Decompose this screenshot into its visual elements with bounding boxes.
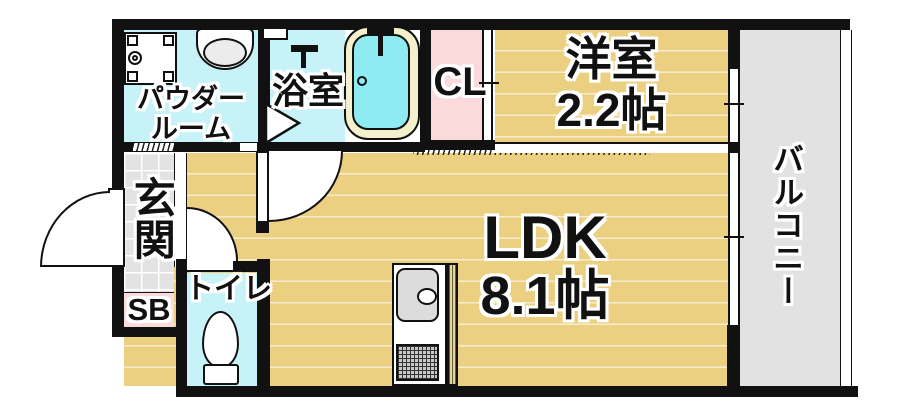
washing-machine-pan-icon xyxy=(124,32,177,85)
toilet-tank-icon xyxy=(203,364,239,385)
shower-stem xyxy=(301,52,306,68)
western-room-label: 洋室 2.2帖 xyxy=(495,34,728,135)
bathroom-label: 浴室 xyxy=(268,71,348,111)
wall-toilet-top xyxy=(233,261,257,272)
ldk-label: LDK 8.1帖 xyxy=(420,208,670,325)
bathtub-icon xyxy=(344,26,420,140)
toilet-label: トイレ xyxy=(185,274,259,306)
western-sliding-band xyxy=(495,142,728,153)
western-window xyxy=(728,69,740,142)
wall-closet-bottom xyxy=(425,140,495,150)
balcony-label: バルコニー xyxy=(768,130,802,320)
wall-divider-stub xyxy=(256,222,269,233)
stove-icon xyxy=(396,344,439,381)
shower-icon xyxy=(291,45,318,52)
entry-door-leaf xyxy=(108,188,125,267)
wall-right-top xyxy=(728,19,740,69)
bath-window-icon xyxy=(262,27,288,40)
closet-label: CL xyxy=(425,60,495,104)
toilet-door-opening xyxy=(187,261,233,272)
ldk-window xyxy=(728,153,740,325)
wall-bottom xyxy=(176,386,858,397)
washroom-door-leaf xyxy=(256,151,269,223)
powder-room-label: パウダー ルーム xyxy=(124,85,258,144)
entry-door-arc xyxy=(40,191,110,267)
floor-plan: パウダー ルーム 浴室 CL 洋室 2.2帖 バルコニー 玄関 SB トイレ L… xyxy=(0,0,902,416)
balcony-fence xyxy=(840,30,852,386)
wall-right-bottom xyxy=(727,325,740,397)
hall-strip xyxy=(174,153,187,267)
ldk-window-tick xyxy=(724,236,744,238)
entrance-label: 玄関 xyxy=(128,168,174,268)
toilet-bowl-icon xyxy=(202,311,239,368)
wall-left xyxy=(112,19,124,337)
shoe-box-label: SB xyxy=(124,293,174,327)
